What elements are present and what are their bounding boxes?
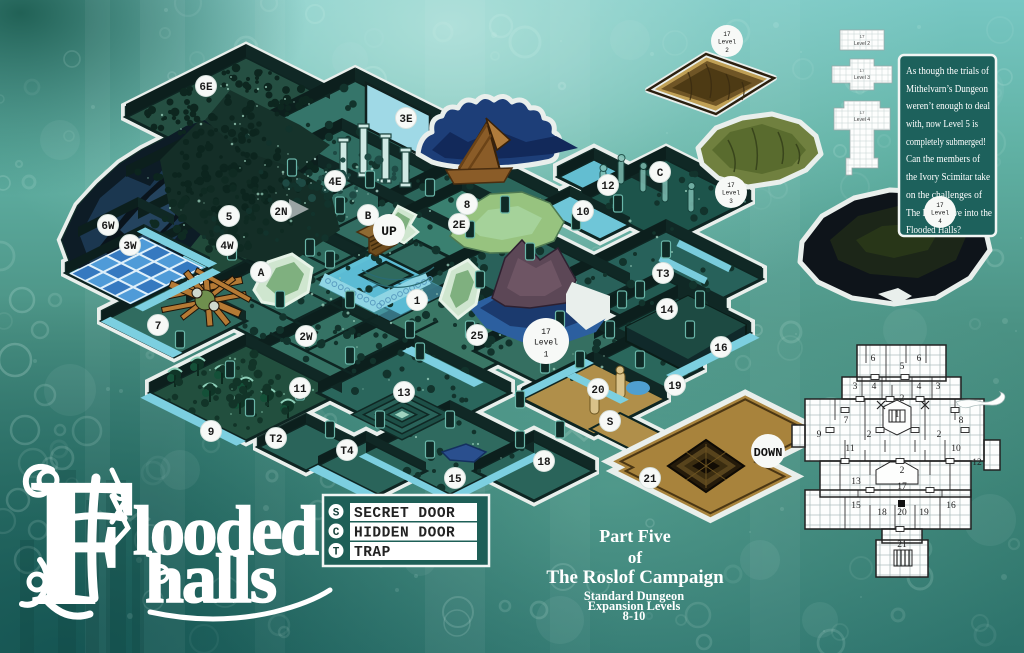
- svg-text:with, now Level 5 is: with, now Level 5 is: [906, 118, 978, 130]
- svg-text:T: T: [333, 547, 340, 559]
- svg-text:1: 1: [544, 351, 549, 360]
- svg-text:9: 9: [208, 427, 215, 439]
- svg-text:17: 17: [859, 34, 865, 39]
- svg-text:TRAP: TRAP: [354, 545, 391, 561]
- svg-text:S: S: [333, 508, 340, 520]
- svg-text:3: 3: [853, 382, 858, 392]
- svg-text:11: 11: [293, 384, 307, 396]
- svg-text:10: 10: [576, 207, 589, 219]
- svg-text:4: 4: [938, 218, 942, 225]
- svg-text:3: 3: [729, 198, 733, 205]
- svg-text:halls: halls: [145, 541, 276, 618]
- svg-text:3W: 3W: [123, 241, 137, 253]
- svg-text:17: 17: [897, 482, 907, 492]
- svg-text:Level: Level: [722, 190, 740, 197]
- svg-text:9: 9: [817, 430, 822, 440]
- svg-text:B: B: [365, 211, 372, 223]
- svg-text:the Ivory Scimitar take: the Ivory Scimitar take: [906, 171, 990, 183]
- svg-text:13: 13: [397, 388, 411, 400]
- svg-text:Level: Level: [718, 39, 736, 46]
- svg-text:14: 14: [660, 305, 674, 317]
- svg-text:11: 11: [845, 444, 854, 454]
- svg-text:5: 5: [900, 362, 905, 372]
- svg-text:17: 17: [936, 202, 944, 209]
- svg-text:T3: T3: [656, 269, 670, 281]
- svg-text:15: 15: [448, 474, 462, 486]
- svg-text:20: 20: [897, 508, 907, 518]
- svg-text:T2: T2: [269, 434, 282, 446]
- svg-text:weren’t enough to deal: weren’t enough to deal: [906, 100, 990, 112]
- svg-text:Level: Level: [931, 210, 949, 217]
- svg-text:Level: Level: [534, 339, 558, 348]
- svg-text:Level 3: Level 3: [854, 75, 870, 81]
- svg-text:7: 7: [844, 416, 849, 426]
- svg-text:2: 2: [900, 394, 905, 404]
- svg-text:3E: 3E: [399, 114, 413, 126]
- svg-text:5: 5: [226, 212, 233, 224]
- svg-text:4: 4: [917, 382, 922, 392]
- svg-text:6: 6: [871, 354, 876, 364]
- svg-text:As though the trials of: As though the trials of: [906, 65, 989, 77]
- svg-text:18: 18: [877, 508, 887, 518]
- svg-text:12: 12: [601, 181, 614, 193]
- svg-text:UP: UP: [381, 224, 397, 239]
- svg-text:10: 10: [951, 444, 961, 454]
- svg-text:17: 17: [541, 328, 551, 337]
- svg-text:6W: 6W: [101, 221, 115, 233]
- svg-text:of: of: [628, 548, 643, 567]
- svg-text:2: 2: [725, 47, 729, 54]
- svg-text:6E: 6E: [199, 82, 213, 94]
- svg-text:1: 1: [414, 296, 421, 308]
- svg-text:17: 17: [723, 31, 731, 38]
- svg-text:16: 16: [714, 343, 727, 355]
- svg-text:T4: T4: [340, 446, 354, 458]
- svg-text:HIDDEN DOOR: HIDDEN DOOR: [354, 526, 455, 542]
- svg-text:19: 19: [668, 381, 681, 393]
- svg-text:3: 3: [936, 382, 941, 392]
- svg-text:Can the members of: Can the members of: [906, 153, 980, 165]
- svg-text:Mithelvarn’s Dungeon: Mithelvarn’s Dungeon: [906, 83, 988, 95]
- svg-text:4: 4: [872, 382, 877, 392]
- svg-text:8-10: 8-10: [623, 609, 646, 623]
- svg-text:completely submerged!: completely submerged!: [906, 136, 986, 148]
- svg-text:21: 21: [897, 540, 907, 550]
- svg-text:8: 8: [959, 416, 964, 426]
- svg-text:2: 2: [937, 430, 942, 440]
- svg-text:25: 25: [470, 331, 484, 343]
- svg-text:4W: 4W: [220, 241, 234, 253]
- svg-text:18: 18: [537, 457, 551, 469]
- svg-text:2: 2: [867, 430, 872, 440]
- svg-text:19: 19: [919, 508, 929, 518]
- svg-text:Part Five: Part Five: [599, 526, 670, 546]
- svg-text:12: 12: [972, 458, 982, 468]
- svg-text:13: 13: [851, 477, 861, 487]
- svg-text:7: 7: [155, 321, 162, 333]
- svg-text:C: C: [657, 168, 664, 180]
- svg-text:17: 17: [727, 182, 735, 189]
- svg-text:15: 15: [851, 501, 861, 511]
- svg-text:6: 6: [917, 354, 922, 364]
- svg-text:20: 20: [591, 385, 604, 397]
- svg-text:C: C: [333, 527, 340, 539]
- svg-text:16: 16: [946, 501, 956, 511]
- svg-text:SECRET DOOR: SECRET DOOR: [354, 506, 455, 522]
- svg-text:The Roslof Campaign: The Roslof Campaign: [546, 567, 724, 588]
- svg-text:21: 21: [643, 474, 657, 486]
- svg-text:2N: 2N: [274, 207, 287, 219]
- svg-text:S: S: [607, 417, 614, 429]
- svg-text:2W: 2W: [299, 332, 313, 344]
- svg-text:2E: 2E: [452, 220, 466, 232]
- svg-text:4E: 4E: [328, 177, 342, 189]
- svg-text:DOWN: DOWN: [754, 446, 783, 460]
- svg-text:2: 2: [900, 466, 905, 476]
- svg-text:1: 1: [895, 410, 900, 420]
- svg-text:8: 8: [464, 200, 471, 212]
- svg-text:Level 4: Level 4: [854, 117, 870, 123]
- svg-text:A: A: [258, 268, 265, 280]
